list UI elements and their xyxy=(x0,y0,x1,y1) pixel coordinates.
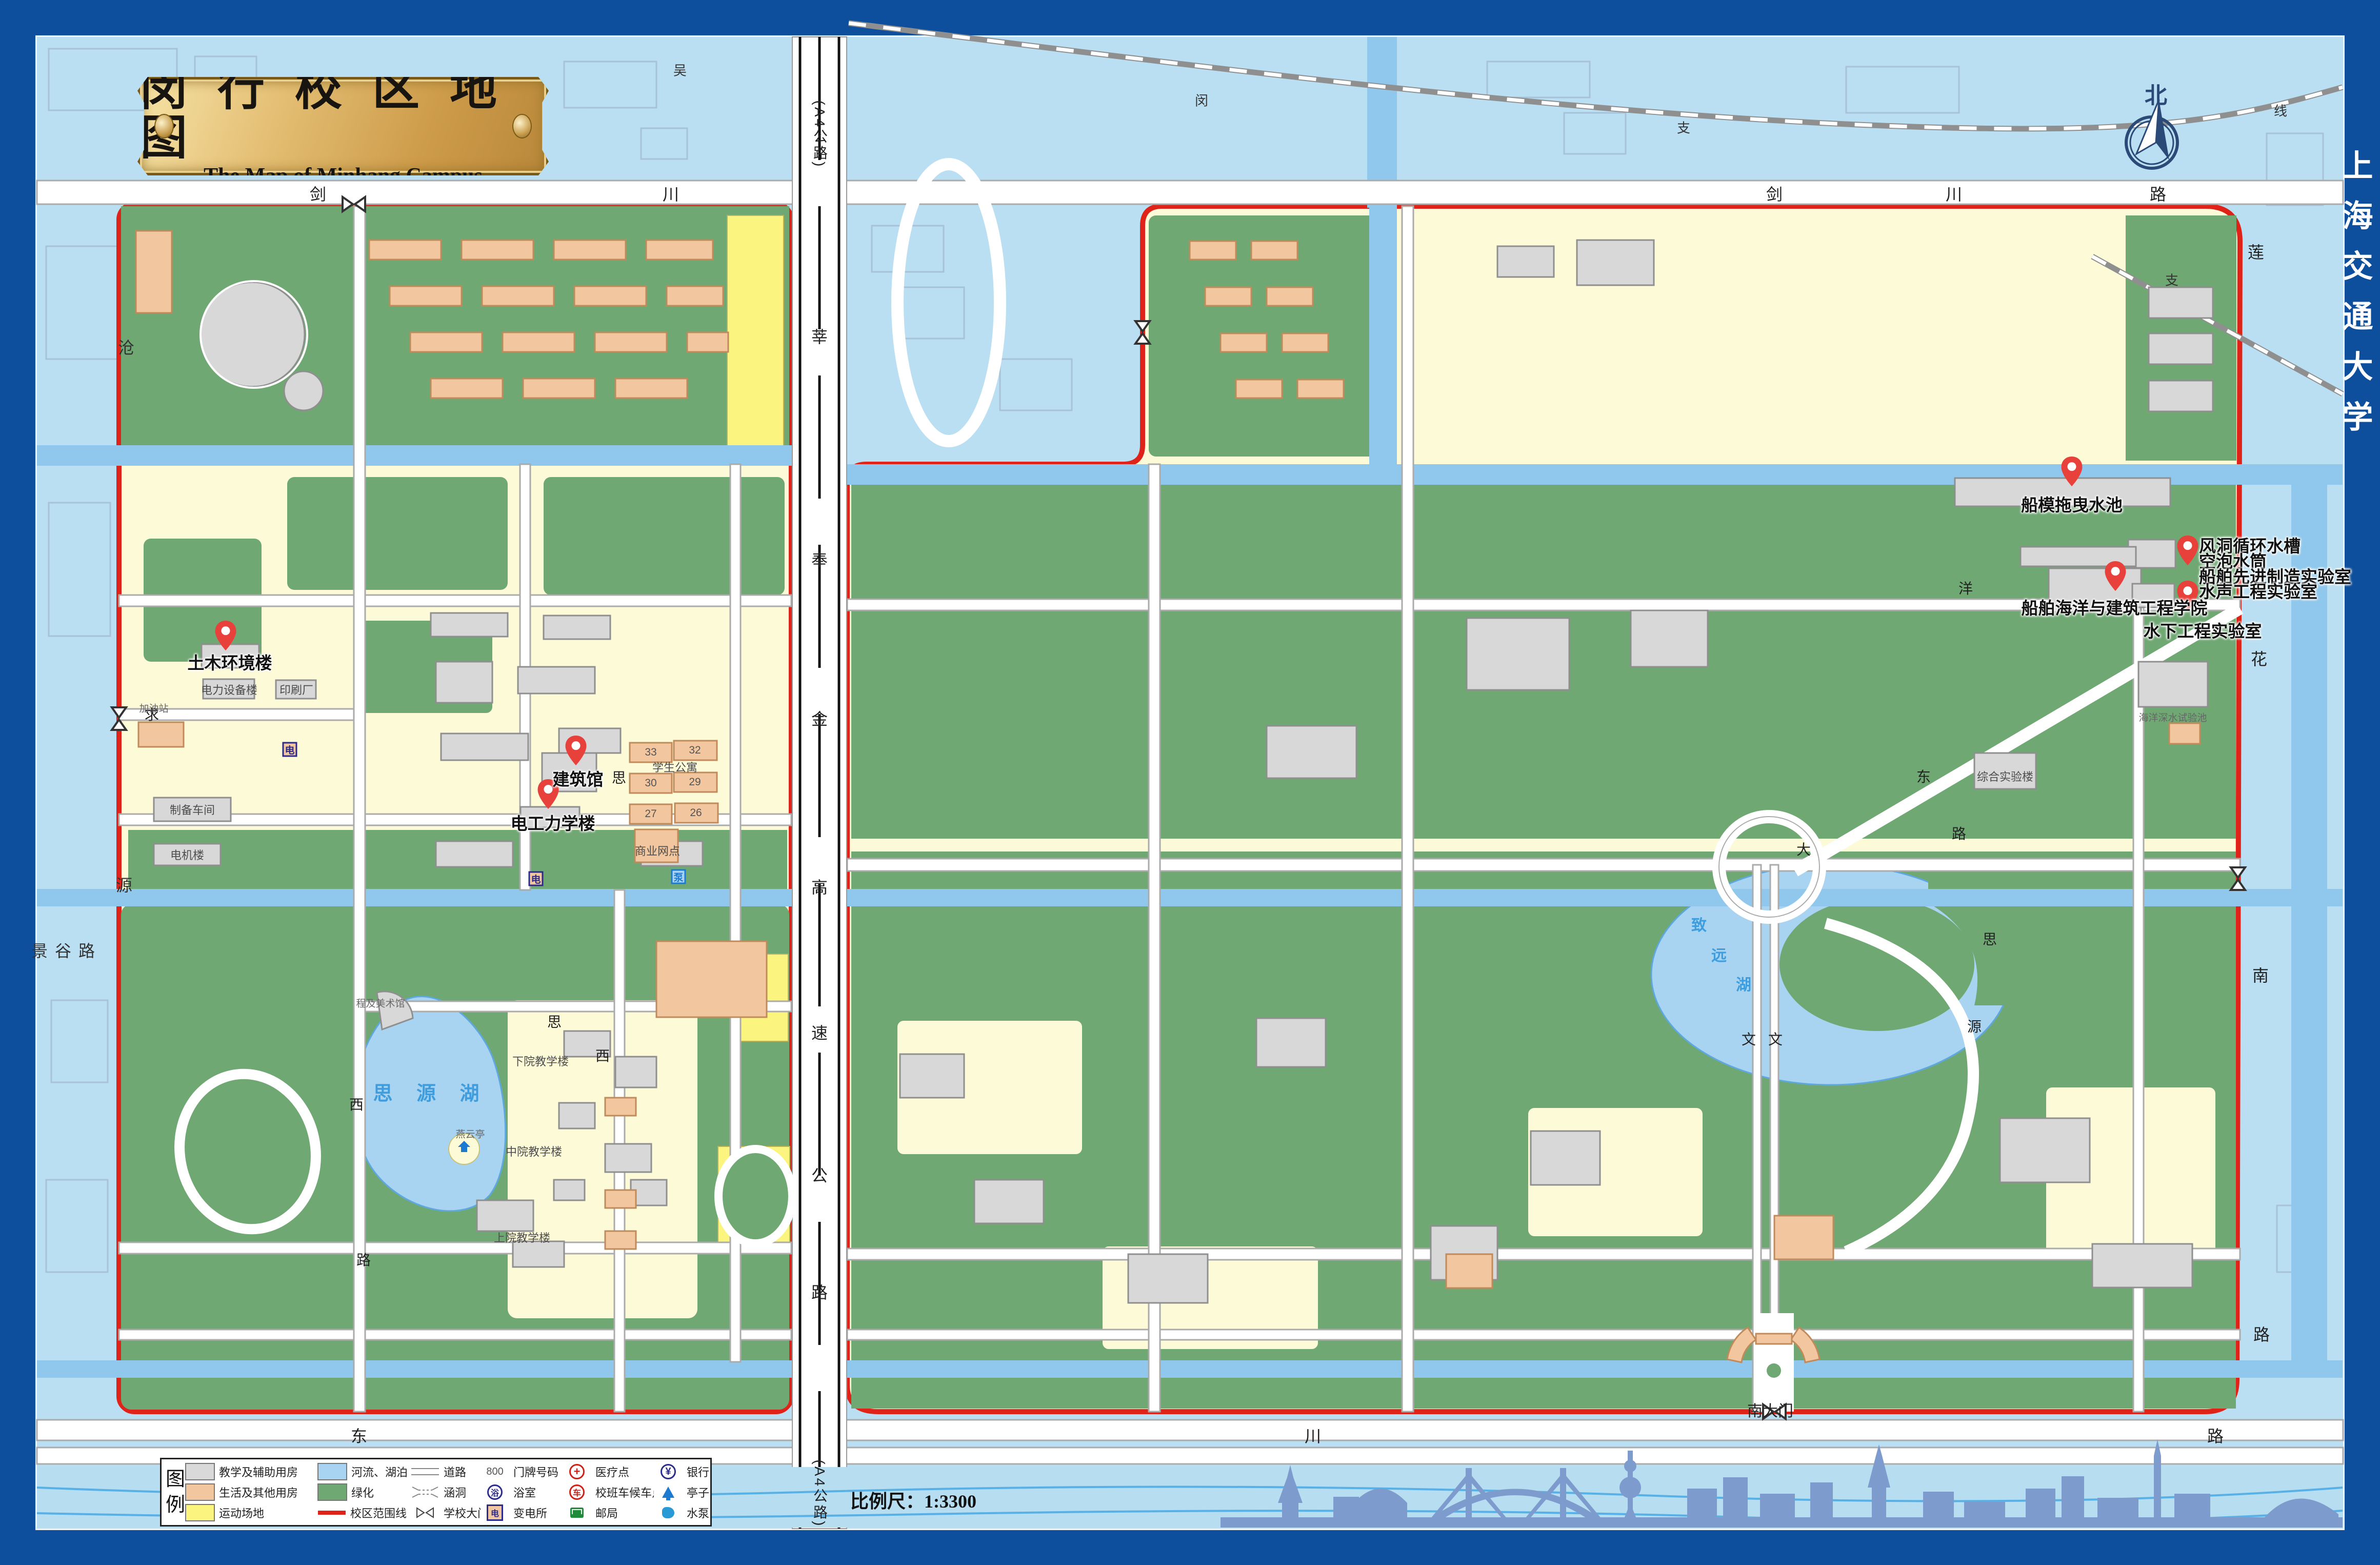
pin-label-underwater-engineering: 水下工程实验室 xyxy=(2144,618,2262,642)
swatch-gray-icon xyxy=(185,1463,215,1480)
road-label-e-wen-1: 文 xyxy=(1742,1028,1756,1049)
legend-item-pump: 水泵房 xyxy=(654,1504,709,1521)
road-lines-icon xyxy=(411,1463,439,1480)
pin-towing-tank[interactable] xyxy=(2061,457,2083,486)
legend-item-gate: 学校大门 xyxy=(411,1504,481,1521)
legend-item-bath: 浴浴室 xyxy=(481,1484,563,1500)
road-label-w-si-2: 思 xyxy=(547,1011,562,1032)
road-label-e-dong: 东 xyxy=(1916,766,1931,786)
rail-label-4: 线 xyxy=(2274,101,2287,120)
road-label-e-si: 思 xyxy=(1983,928,1997,949)
bldg-label-print-shop: 印刷厂 xyxy=(279,681,313,698)
rail-label-5: 支 xyxy=(2165,270,2178,289)
legend-item-house-number: 800门牌号码 xyxy=(481,1463,563,1480)
bath-icon: 浴 xyxy=(481,1484,509,1500)
legend-item-bank: ¥银行 xyxy=(654,1463,709,1480)
legend-item-road: 道路 xyxy=(411,1463,481,1480)
road-label-lianhua-2: 花 xyxy=(2251,646,2267,670)
legend-item-green: 绿化 xyxy=(317,1483,411,1501)
boundary-line-icon xyxy=(317,1504,346,1521)
legend-item-living: 生活及其他用房 xyxy=(185,1483,317,1501)
dorm-number-32: 32 xyxy=(689,744,701,757)
bldg-label-comprehensive-lab: 综合实验楼 xyxy=(1977,768,2033,784)
swatch-green-icon xyxy=(317,1483,347,1501)
bldg-label-commercial: 商业网点 xyxy=(635,842,680,859)
lake-label-zhiyuan-3: 湖 xyxy=(1736,972,1751,995)
bldg-label-deepwater-pool: 海洋深水试验池 xyxy=(2138,710,2207,724)
map-title-zh: 闵 行 校 区 地 图 xyxy=(140,64,546,163)
road-label-expwy-2: 奉 xyxy=(811,547,828,571)
bldg-label-prep-workshop: 制备车间 xyxy=(170,801,215,818)
road-label-w-lu: 路 xyxy=(356,1249,371,1270)
legend-grid: 教学及辅助用房 河流、湖泊 道路 800门牌号码 +医疗点 ¥银行 生活及其他用… xyxy=(185,1461,709,1523)
legend-item-medical: +医疗点 xyxy=(563,1463,654,1480)
pin-label-naval-architecture: 船舶海洋与建筑工程学院 xyxy=(2022,595,2208,619)
legend-item-post: 邮局 xyxy=(563,1504,654,1521)
road-label-jianchuan-e-2: 川 xyxy=(1946,182,1962,205)
road-label-jianchuan-w-1: 剑 xyxy=(310,182,326,205)
road-label-w-xi-1: 西 xyxy=(595,1045,610,1065)
bldg-label-motor-building: 电机楼 xyxy=(170,846,204,863)
dorm-number-33: 33 xyxy=(645,746,656,759)
compass-rose: 北 xyxy=(2112,77,2199,174)
road-label-expwy-1: 莘 xyxy=(811,324,828,348)
pin-naval-architecture-school[interactable] xyxy=(2104,561,2127,591)
road-label-a4-bottom: (A4公路) xyxy=(809,1460,830,1528)
bldg-label-student-apartments: 学生公寓 xyxy=(652,759,697,775)
road-label-a4-top: (A4公路) xyxy=(809,101,830,169)
pin-civil-environment[interactable] xyxy=(214,621,237,650)
swatch-blue-icon xyxy=(317,1463,347,1480)
road-label-e-yang: 洋 xyxy=(1958,578,1973,598)
pin-label-architecture-hall: 建筑馆 xyxy=(553,766,604,790)
title-plaque: 闵 行 校 区 地 图 The Map of Minhang Campus xyxy=(137,77,549,175)
dorm-number-30: 30 xyxy=(645,777,656,789)
road-label-expwy-5: 速 xyxy=(811,1020,828,1044)
legend-item-substation: 电变电所 xyxy=(481,1504,563,1521)
bldg-label-power-equipment: 电力设备楼 xyxy=(201,681,257,698)
expressway xyxy=(792,37,847,1529)
road-label-expwy-6: 公 xyxy=(811,1163,828,1186)
lake-label-zhiyuan-1: 致 xyxy=(1691,913,1707,935)
university-name: 上海交通大学 xyxy=(2346,49,2377,551)
road-label-dongchuan-3: 路 xyxy=(2207,1423,2224,1447)
scale-value: 1:3300 xyxy=(924,1491,976,1512)
road-label-expwy-7: 路 xyxy=(811,1280,828,1303)
house-number-icon: 800 xyxy=(481,1463,509,1480)
substation-icon: 电 xyxy=(481,1504,509,1521)
plaque-screw-left xyxy=(154,114,174,138)
pin-label-towing-tank: 船模拖曳水池 xyxy=(2021,491,2123,516)
road-label-expwy-3: 金 xyxy=(811,706,828,730)
dorm-number-29: 29 xyxy=(689,776,701,788)
svg-text:电: 电 xyxy=(531,874,541,885)
pin-wind-tunnel-labs[interactable] xyxy=(2176,536,2199,565)
south-gate-label: 南大门 xyxy=(1747,1398,1793,1421)
road-label-e-wen-2: 文 xyxy=(1768,1028,1783,1049)
legend-item-culvert: 涵洞 xyxy=(411,1484,481,1500)
legend-box: 图 例 教学及辅助用房 河流、湖泊 道路 800门牌号码 +医疗点 ¥银行 生活… xyxy=(160,1458,712,1527)
road-label-expwy-4: 高 xyxy=(811,875,828,898)
compass-north-label: 北 xyxy=(2145,77,2167,110)
pin-architecture-hall[interactable] xyxy=(565,736,587,765)
bank-icon: ¥ xyxy=(654,1463,683,1480)
road-label-jianchuan-w-2: 川 xyxy=(663,182,679,205)
post-office-icon xyxy=(563,1504,591,1521)
legend-heading-char-1: 图 xyxy=(166,1467,185,1492)
road-label-jianchuan-e-1: 剑 xyxy=(1766,182,1783,205)
swatch-yellow-icon xyxy=(185,1504,215,1521)
legend-heading: 图 例 xyxy=(166,1467,185,1518)
road-label-dongchuan-2: 川 xyxy=(1305,1423,1321,1447)
svg-text:电: 电 xyxy=(285,744,294,756)
svg-text:泵: 泵 xyxy=(673,872,683,883)
road-label-cangyuan-2: 源 xyxy=(116,873,132,896)
road-label-cangyuan-1: 沧 xyxy=(118,335,134,359)
bldg-label-lower-court: 下院教学楼 xyxy=(512,1053,569,1069)
pavilion-label-yanyun: 燕云亭 xyxy=(455,1127,485,1141)
shuttle-stop-icon: 车 xyxy=(563,1484,591,1500)
legend-item-teaching: 教学及辅助用房 xyxy=(185,1463,317,1480)
legend-item-sports: 运动场地 xyxy=(185,1504,317,1521)
bldg-label-upper-court: 上院教学楼 xyxy=(494,1229,550,1245)
road-label-jianchuan-e-3: 路 xyxy=(2150,182,2166,205)
medical-cross-icon: + xyxy=(563,1463,591,1480)
bldg-label-gas-station: 加油站 xyxy=(139,701,168,715)
road-label-e-yuan: 源 xyxy=(1967,1016,1982,1036)
culvert-icon xyxy=(411,1484,439,1500)
road-label-jinggu: 景谷路 xyxy=(31,938,102,962)
road-label-dongchuan-1: 东 xyxy=(351,1423,367,1447)
lake-label-zhiyuan-2: 远 xyxy=(1711,943,1727,965)
legend-heading-char-2: 例 xyxy=(166,1492,185,1518)
road-label-w-xi-2: 西 xyxy=(349,1094,364,1114)
road-label-e-lu: 路 xyxy=(1952,823,1966,843)
rail-label-1: 吴 xyxy=(673,61,687,80)
rail-label-2: 闵 xyxy=(1195,91,1208,110)
lake-label-siyuan: 思 源 湖 xyxy=(373,1078,488,1106)
east-campus xyxy=(847,206,2240,1412)
rail-label-3: 支 xyxy=(1677,118,1690,137)
dorm-number-26: 26 xyxy=(690,807,702,819)
legend-item-pavilion: 亭子 xyxy=(654,1484,709,1500)
pavilion-icon xyxy=(654,1484,683,1500)
pin-label-electrical-mechanics: 电工力学楼 xyxy=(511,810,595,835)
road-label-lianhua-4: 路 xyxy=(2253,1322,2270,1345)
pin-label-civil-environment: 土木环境楼 xyxy=(188,649,272,674)
bldg-label-art-museum: 程及美术馆 xyxy=(356,996,405,1010)
pin-label-underwater-acoustics: 水声工程实验室 xyxy=(2199,578,2317,603)
scale-label: 比例尺： xyxy=(850,1491,924,1512)
road-label-lianhua-1: 莲 xyxy=(2248,240,2264,263)
road-label-lianhua-3: 南 xyxy=(2252,963,2269,986)
road-label-w-si-1: 思 xyxy=(612,767,626,787)
school-gate-icon xyxy=(411,1504,439,1521)
legend-item-water: 河流、湖泊 xyxy=(317,1463,411,1480)
swatch-orange-icon xyxy=(185,1483,215,1501)
legend-item-shuttle: 车校班车候车点 xyxy=(563,1484,654,1500)
plaque-screw-right xyxy=(512,114,532,138)
campus-map-page: 电 电 泵 xyxy=(0,0,2380,1565)
bldg-label-middle-court: 中院教学楼 xyxy=(506,1143,562,1159)
dorm-number-27: 27 xyxy=(645,808,656,820)
pump-house-icon xyxy=(654,1504,683,1521)
legend-item-boundary: 校区范围线 xyxy=(317,1504,411,1521)
scale-bar: 比例尺：1:3300 xyxy=(850,1487,976,1513)
road-label-e-da: 大 xyxy=(1796,839,1811,859)
